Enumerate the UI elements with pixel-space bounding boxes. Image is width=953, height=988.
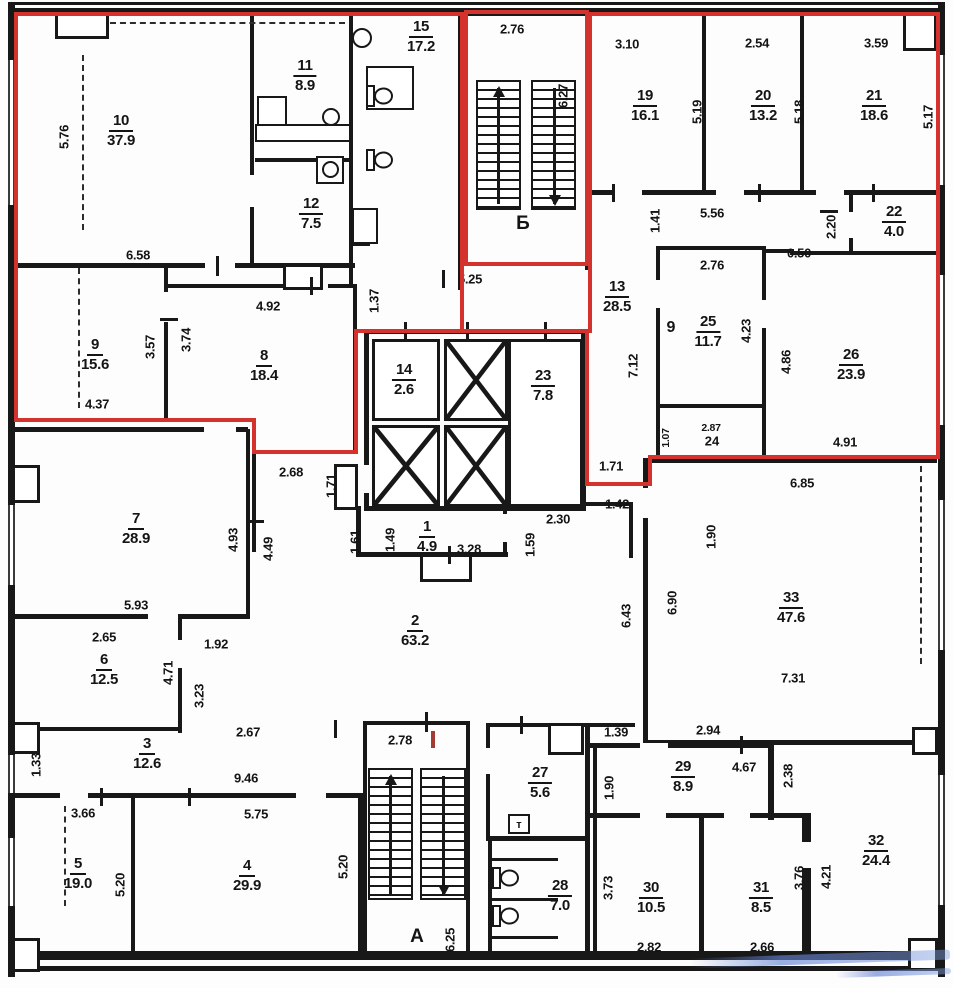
toilet-bowl [500, 870, 519, 887]
wall-segment [656, 246, 766, 250]
door-opening [250, 175, 254, 207]
wall-tick-mark [448, 546, 451, 564]
dimension-label: 1.39 [604, 725, 628, 740]
room-area: 12.6 [133, 755, 161, 773]
selection-outline-segment [585, 482, 652, 486]
wall-tick-mark [334, 720, 337, 738]
wall-segment [15, 727, 182, 731]
wall-segment [8, 966, 941, 971]
wall-tick-mark [188, 788, 191, 806]
room-label: 26 23.9 [837, 347, 865, 383]
floor-plan: 10 37.9 11 8.9 12 7.5 15 17.2 9 15.6 8 1… [0, 0, 953, 988]
wall-segment [486, 723, 490, 841]
wall-pier [55, 13, 109, 39]
dimension-label: 4.67 [732, 760, 756, 775]
room-area: 16.1 [631, 107, 659, 125]
wall-segment [363, 721, 470, 725]
dimension-label: 1.33 [29, 753, 44, 777]
dimension-label: 5.76 [57, 125, 72, 149]
room-number: 6 [96, 652, 112, 671]
room-label: 5 19.0 [64, 856, 92, 892]
room-label: 6 12.5 [90, 652, 118, 688]
fixture-t-label: т [516, 819, 521, 831]
dimension-label: 5.75 [244, 807, 268, 822]
wall-tick-mark [100, 788, 103, 806]
room-label: 14 2.6 [392, 362, 416, 398]
selection-outline-segment [936, 12, 940, 459]
corridor-9-label: 9 [667, 319, 676, 337]
dashed-line [78, 268, 80, 408]
room-label: 27 5.6 [528, 765, 552, 801]
dimension-label: 2.66 [750, 940, 774, 955]
selection-outline-segment [14, 12, 18, 422]
sink-icon [322, 108, 340, 126]
room-area: 17.2 [407, 38, 435, 56]
dimension-label: 1.61 [348, 530, 363, 554]
wall-pier [903, 13, 937, 51]
wall-tick-mark [425, 712, 428, 732]
duct-box [548, 723, 584, 755]
room-number: 31 [749, 880, 773, 899]
wall-segment [488, 836, 588, 841]
room-label: 23 7.8 [531, 368, 555, 404]
door-opening [364, 465, 369, 493]
dimension-label: 5.56 [700, 206, 724, 221]
room-area: 24.4 [862, 852, 890, 870]
room-number: 21 [862, 88, 886, 107]
room-label: 19 16.1 [631, 88, 659, 124]
room-label: 1 4.9 [417, 519, 437, 555]
wall-segment [762, 246, 766, 458]
room-label: 33 47.6 [777, 590, 805, 626]
lobby-bump [420, 554, 472, 582]
dimension-label: 7.31 [781, 671, 805, 686]
wall-tick-mark [216, 256, 219, 276]
wall-tick-mark [758, 184, 761, 202]
window [938, 500, 945, 650]
selection-outline-segment [464, 262, 589, 266]
room-area: 19.0 [64, 875, 92, 893]
wall-segment [492, 858, 558, 861]
dimension-label: 3.73 [601, 876, 616, 900]
dimension-label: 4.71 [161, 661, 176, 685]
room-number: 5 [70, 856, 86, 875]
wall-segment [768, 743, 774, 820]
room-label: 28 7.0 [548, 878, 572, 914]
room-number: 1 [419, 519, 435, 538]
dimension-label: 2.20 [824, 215, 839, 239]
room-area: 2.6 [392, 381, 416, 399]
selection-outline-segment [252, 418, 256, 454]
room-label: 13 28.5 [603, 279, 631, 315]
dimension-label: 0.50 [787, 246, 811, 261]
room-number: 25 [696, 314, 720, 333]
room-area: 11.7 [694, 333, 721, 351]
room-label: 15 17.2 [407, 19, 435, 55]
room-number: 7 [128, 511, 144, 530]
room-number: 19 [633, 88, 657, 107]
elevator-shaft-icon [372, 425, 440, 507]
wall-tick-mark [310, 277, 313, 295]
dimension-label: 3.59 [864, 36, 888, 51]
room-area: 7.8 [531, 387, 555, 405]
toilet-bowl [374, 88, 393, 105]
room-area: 28.5 [603, 298, 631, 316]
door-opening [640, 813, 666, 818]
sink-icon [322, 161, 339, 178]
wall-segment [590, 190, 937, 195]
wall-segment [590, 743, 774, 748]
wall-segment [492, 936, 558, 939]
elevator-shaft-icon [444, 425, 508, 507]
room-number: 14 [392, 362, 416, 381]
room-number: 33 [779, 590, 803, 609]
dimension-label: 3.76 [792, 866, 807, 890]
wall-tick-mark [612, 184, 615, 202]
dimension-label: 5.19 [690, 100, 705, 124]
dimension-label: 1.90 [602, 776, 617, 800]
dimension-label: 3.23 [192, 684, 207, 708]
dashed-line [110, 22, 345, 24]
window [8, 838, 15, 906]
room-number: 20 [751, 88, 775, 107]
wall-segment [699, 818, 704, 955]
tub-box [352, 208, 378, 244]
sink-icon [352, 28, 372, 48]
room-label: 22 4.0 [882, 204, 906, 240]
dimension-label: 1.71 [324, 474, 339, 498]
dimension-label: 6.27 [556, 84, 571, 108]
room-area: 7.0 [548, 897, 572, 915]
stairwell-b-label: Б [516, 213, 530, 235]
dimension-label: 1.41 [648, 209, 663, 233]
wall-tick-mark [820, 210, 838, 213]
wall-segment [790, 251, 937, 255]
door-opening [716, 190, 744, 195]
room-area: 8.5 [749, 899, 773, 917]
room-area: 18.4 [250, 367, 278, 385]
room-area: 4.9 [417, 538, 437, 556]
room-number: 26 [839, 347, 863, 366]
door-opening [486, 748, 490, 774]
room-area: 10.5 [637, 899, 665, 917]
door-opening [849, 212, 853, 238]
dimension-label: 1.59 [523, 533, 538, 557]
room-area: 8.9 [671, 778, 695, 796]
dimension-label: 6.58 [126, 248, 150, 263]
room-area: 18.6 [860, 107, 888, 125]
toilet-icon [366, 84, 396, 108]
room-number: 10 [109, 113, 133, 132]
room-number: 9 [87, 337, 103, 356]
room-number: 13 [605, 279, 629, 298]
room-label: 8 18.4 [250, 348, 278, 384]
room-label: 31 8.5 [749, 880, 773, 916]
room-area: 29.9 [233, 877, 261, 895]
room-number: 27 [528, 765, 552, 784]
selection-outline-segment [648, 455, 940, 459]
dimension-label: 2.65 [92, 630, 116, 645]
room-area: 63.2 [401, 632, 429, 650]
dimension-label: 6.90 [665, 591, 680, 615]
selection-outline-segment [648, 455, 652, 486]
wall-segment [178, 619, 182, 733]
dimension-label: 2.76 [500, 22, 524, 37]
room-label: 12 7.5 [299, 196, 323, 232]
dimension-label: 3.57 [143, 335, 158, 359]
wall-pier [12, 465, 40, 503]
room-label: 4 29.9 [233, 858, 261, 894]
door-opening [296, 793, 326, 798]
room-area: 47.6 [777, 609, 805, 627]
room-area: 13.2 [749, 107, 777, 125]
toilet-icon [366, 148, 396, 172]
dimension-label: 2.94 [696, 723, 720, 738]
wall-segment [629, 506, 633, 558]
room-number: 8 [256, 348, 272, 367]
room-number: 3 [139, 736, 155, 755]
room-number: 32 [864, 833, 888, 852]
wall-segment [246, 429, 250, 619]
door-opening [640, 743, 668, 748]
dimension-label: 4.23 [739, 319, 754, 343]
room-label: 29 8.9 [671, 759, 695, 795]
room-number: 2 [407, 613, 423, 632]
dimension-label: 4.49 [261, 537, 276, 561]
door-opening [724, 813, 750, 818]
room-label: 3 12.6 [133, 736, 161, 772]
room-number: 15 [409, 19, 433, 38]
window [8, 755, 15, 793]
dimension-label: 3.10 [615, 37, 639, 52]
dimension-label: 4.37 [85, 397, 109, 412]
dimension-label: 1.92 [204, 637, 228, 652]
door-opening [148, 614, 178, 619]
door-opening [762, 300, 766, 328]
selection-outline-segment [588, 12, 940, 16]
toilet-bowl [374, 152, 393, 169]
room-area: 7.5 [299, 215, 323, 233]
toilet-icon [492, 904, 522, 928]
room-number: 12 [299, 196, 323, 215]
dimension-label: 4.21 [819, 865, 834, 889]
wall-tick-mark [352, 243, 370, 246]
selection-outline-segment [14, 418, 256, 422]
dimension-label: 5.20 [336, 855, 351, 879]
room-label: 11 8.9 [293, 58, 316, 94]
wall-segment [8, 2, 945, 5]
dimension-label: 2.87 [701, 422, 720, 434]
selection-outline-segment [585, 329, 589, 486]
wall-segment [363, 721, 367, 955]
dimension-label: 2.54 [745, 36, 769, 51]
dimension-label: 2.67 [236, 725, 260, 740]
dimension-label: 6.25 [443, 928, 458, 952]
door-opening [643, 488, 648, 518]
wall-pier [12, 722, 40, 754]
selection-outline-segment [588, 12, 592, 333]
vestibule-bump [283, 264, 323, 290]
dimension-label: 7.12 [626, 354, 641, 378]
room-area: 15.6 [81, 356, 109, 374]
wall-segment [252, 452, 256, 552]
stair-direction-arrow [389, 776, 392, 894]
wall-tick-mark [872, 184, 875, 202]
counter [255, 124, 351, 142]
room-area: 23.9 [837, 366, 865, 384]
selection-outline-segment [252, 450, 358, 454]
dimension-label: 2.68 [279, 465, 303, 480]
selection-outline-segment [14, 12, 464, 16]
room-label: 25 11.7 [694, 314, 721, 350]
red-tick-mark [431, 731, 435, 748]
dimension-label: 4.86 [779, 350, 794, 374]
dimension-label: 1.90 [704, 525, 719, 549]
door-opening [503, 514, 507, 542]
elevator-shaft-icon [444, 339, 508, 421]
door-opening [656, 280, 660, 308]
room-label: 2 63.2 [401, 613, 429, 649]
wall-segment [656, 246, 660, 408]
door-opening [204, 427, 236, 432]
dimension-label: 3.28 [457, 542, 481, 557]
dimension-label: 2.82 [637, 940, 661, 955]
room-23-box [508, 339, 583, 507]
dimension-label: 6.85 [790, 476, 814, 491]
toilet-icon [492, 866, 522, 890]
room-label: 10 37.9 [107, 113, 135, 149]
dimension-label: 2.30 [546, 512, 570, 527]
room-label: 9 15.6 [81, 337, 109, 373]
room-label: 21 18.6 [860, 88, 888, 124]
toilet-bowl [500, 908, 519, 925]
dimension-label: 2.76 [700, 258, 724, 273]
window [938, 775, 945, 905]
room-number: 11 [293, 58, 316, 77]
wall-segment [131, 798, 135, 953]
door-opening [60, 793, 88, 798]
wall-tick-mark [740, 736, 743, 754]
dimension-label: 2.78 [388, 733, 412, 748]
room-area: 28.9 [122, 530, 150, 548]
wall-segment [593, 745, 597, 817]
dimension-label: 5.93 [124, 598, 148, 613]
wall-tick-mark [442, 270, 445, 288]
room-number: 30 [639, 880, 663, 899]
wall-segment [15, 614, 248, 619]
dimension-label: 5.17 [921, 105, 936, 129]
room-label: 7 28.9 [122, 511, 150, 547]
selection-outline-segment [354, 329, 358, 454]
dimension-label: 1.07 [660, 428, 672, 447]
wall-tick-mark [160, 318, 178, 321]
stove-box [257, 96, 287, 126]
room-label: 30 10.5 [637, 880, 665, 916]
room-label: 32 24.4 [862, 833, 890, 869]
room-label: 20 13.2 [749, 88, 777, 124]
room-number: 22 [882, 204, 906, 223]
dimension-label: 5.18 [792, 100, 807, 124]
room-number: 29 [671, 759, 695, 778]
door-opening [802, 842, 811, 868]
room-area: 5.6 [528, 784, 552, 802]
wall-segment [656, 404, 766, 408]
wall-tick-mark [246, 520, 264, 523]
room-area: 12.5 [90, 671, 118, 689]
door-opening [205, 263, 235, 268]
room-area: 8.9 [293, 77, 316, 95]
stair-direction-arrow [497, 88, 500, 204]
dimension-label: 3.66 [71, 806, 95, 821]
wall-segment [593, 813, 597, 955]
window [8, 505, 15, 585]
stairwell-a-label: А [410, 926, 424, 948]
dimension-label: 2.38 [781, 764, 796, 788]
dimension-label: 4.92 [256, 299, 280, 314]
wall-segment [466, 721, 470, 955]
dimension-label: 3.74 [179, 328, 194, 352]
room-number: 4 [239, 858, 255, 877]
dimension-label: 9.46 [234, 771, 258, 786]
wall-pier [12, 938, 40, 972]
dimension-label: 6.43 [619, 604, 634, 628]
room-area: 37.9 [107, 132, 135, 150]
selection-outline-segment [464, 10, 468, 266]
dimension-label: 1.37 [367, 289, 382, 313]
dashed-line [920, 466, 922, 664]
dimension-label: 1.71 [599, 459, 623, 474]
door-opening [178, 640, 182, 668]
wall-tick-mark [520, 716, 523, 734]
dimension-label: 1.42 [605, 497, 629, 512]
dashed-line [82, 55, 84, 230]
door-opening [614, 190, 642, 195]
dimension-label: 4.91 [833, 435, 857, 450]
selection-outline-segment [354, 329, 586, 333]
room-24-number: 24 [705, 434, 719, 449]
dimension-label: 4.93 [226, 528, 241, 552]
wall-segment [349, 16, 353, 288]
wall-pier [912, 727, 938, 755]
stair-direction-arrow [442, 776, 445, 894]
selection-outline-segment [464, 10, 589, 14]
door-opening [816, 190, 844, 195]
dimension-label: 1.49 [383, 528, 398, 552]
dimension-label: 5.20 [113, 873, 128, 897]
wall-segment [250, 16, 254, 266]
room-number: 28 [548, 878, 572, 897]
room-area: 4.0 [882, 223, 906, 241]
room-number: 23 [531, 368, 555, 387]
wall-segment [164, 266, 168, 422]
